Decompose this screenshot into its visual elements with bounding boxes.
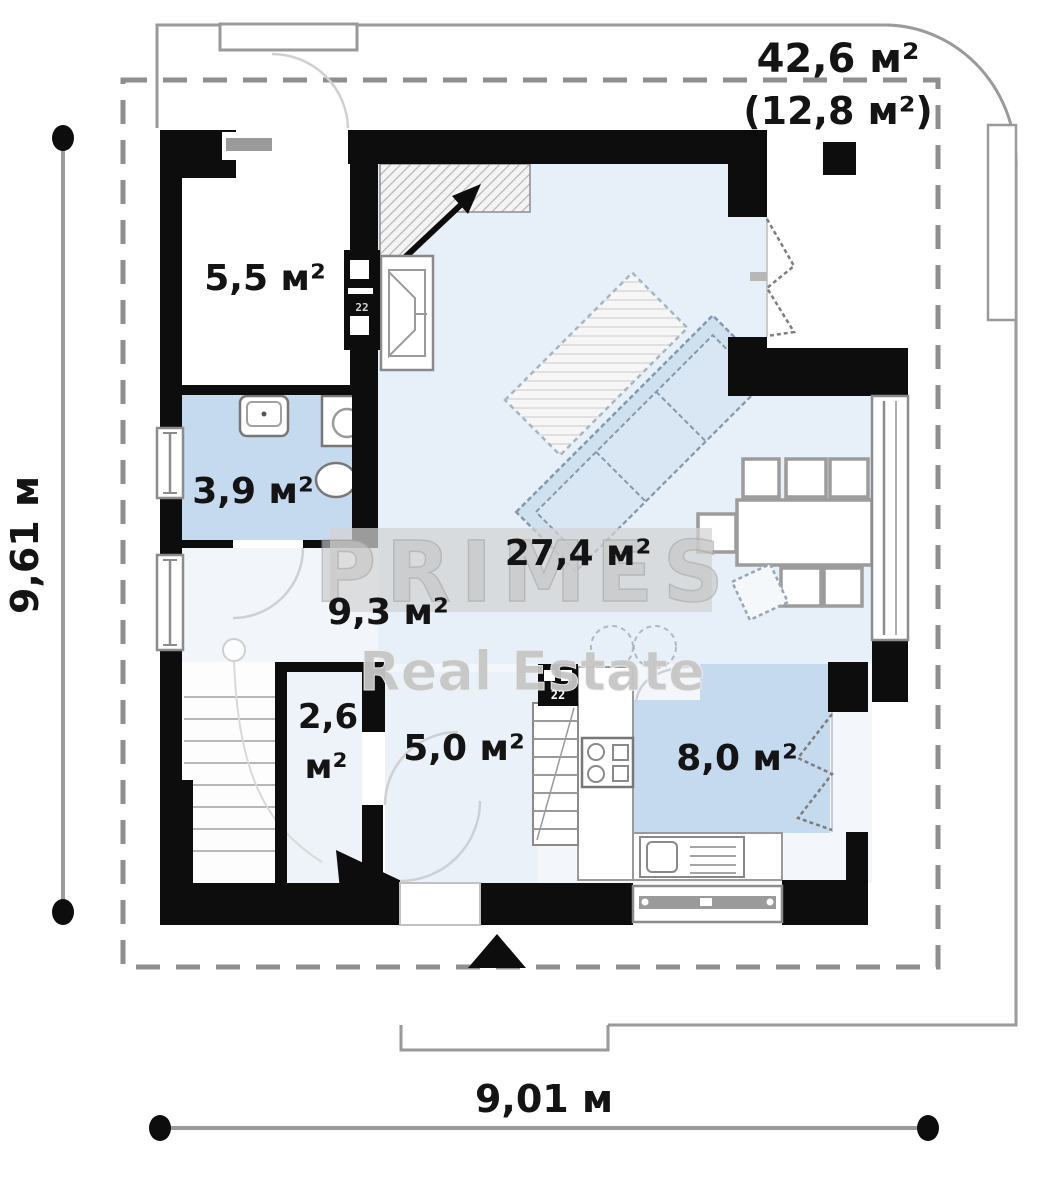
entrance-porch (401, 1025, 608, 1050)
label-kitchen: 8,0 м² (676, 738, 798, 779)
label-closet-value: 2,6 (298, 697, 358, 737)
label-dimension-vertical: 9,61 м (3, 476, 47, 614)
label-dimension-horizontal: 9,01 м (475, 1077, 613, 1121)
chair (824, 568, 862, 606)
dimension-dot (917, 1115, 939, 1141)
dimension-dot (52, 899, 74, 925)
label-living-room: 27,4 м² (505, 533, 652, 574)
dimension-vertical: 9,61 м (3, 125, 74, 925)
ladder-shelf-unit (533, 703, 578, 845)
watermark-tagline: Real Estate (359, 640, 705, 703)
stove (582, 738, 633, 787)
stair-newel-post (223, 639, 245, 661)
window-left-lower (157, 555, 183, 650)
label-closet-unit: м² (305, 747, 348, 787)
label-bathroom: 3,9 м² (192, 471, 314, 512)
dimension-dot (149, 1115, 171, 1141)
floor-plan-drawing: 22 22 (0, 0, 1046, 1200)
chair (786, 459, 826, 497)
floor-plan-page: 22 22 (0, 0, 1046, 1200)
door-pantry-exterior (272, 54, 348, 128)
dimension-horizontal: 9,01 м (149, 1077, 939, 1141)
dimension-dot (52, 125, 74, 151)
label-terrace-covered: (12,8 м²) (743, 89, 932, 133)
roof-chimney-outline (220, 24, 357, 50)
kitchen-sink (640, 837, 744, 877)
entrance-arrow-icon (468, 934, 526, 968)
label-terrace-total: 42,6 м² (757, 36, 920, 82)
label-vestibule: 5,0 м² (403, 728, 525, 769)
fireplace (381, 256, 433, 370)
bathroom-sink (240, 396, 288, 436)
terrace-pillar (988, 125, 1016, 320)
window-kitchen-bottom (633, 886, 782, 922)
window-dining-right (872, 396, 908, 640)
dining-table (737, 500, 872, 565)
flue-block-living: 22 (344, 250, 380, 350)
chair (743, 459, 779, 497)
flue-label: 22 (355, 301, 368, 314)
label-hall: 9,3 м² (327, 592, 449, 633)
terrace-column-marker (823, 142, 856, 175)
stairwell-floor (182, 662, 275, 883)
entrance-door-threshold (400, 883, 480, 925)
chair (830, 459, 868, 497)
window-left-upper (157, 428, 183, 498)
window-pantry-top (222, 132, 276, 160)
label-pantry: 5,5 м² (204, 258, 326, 299)
